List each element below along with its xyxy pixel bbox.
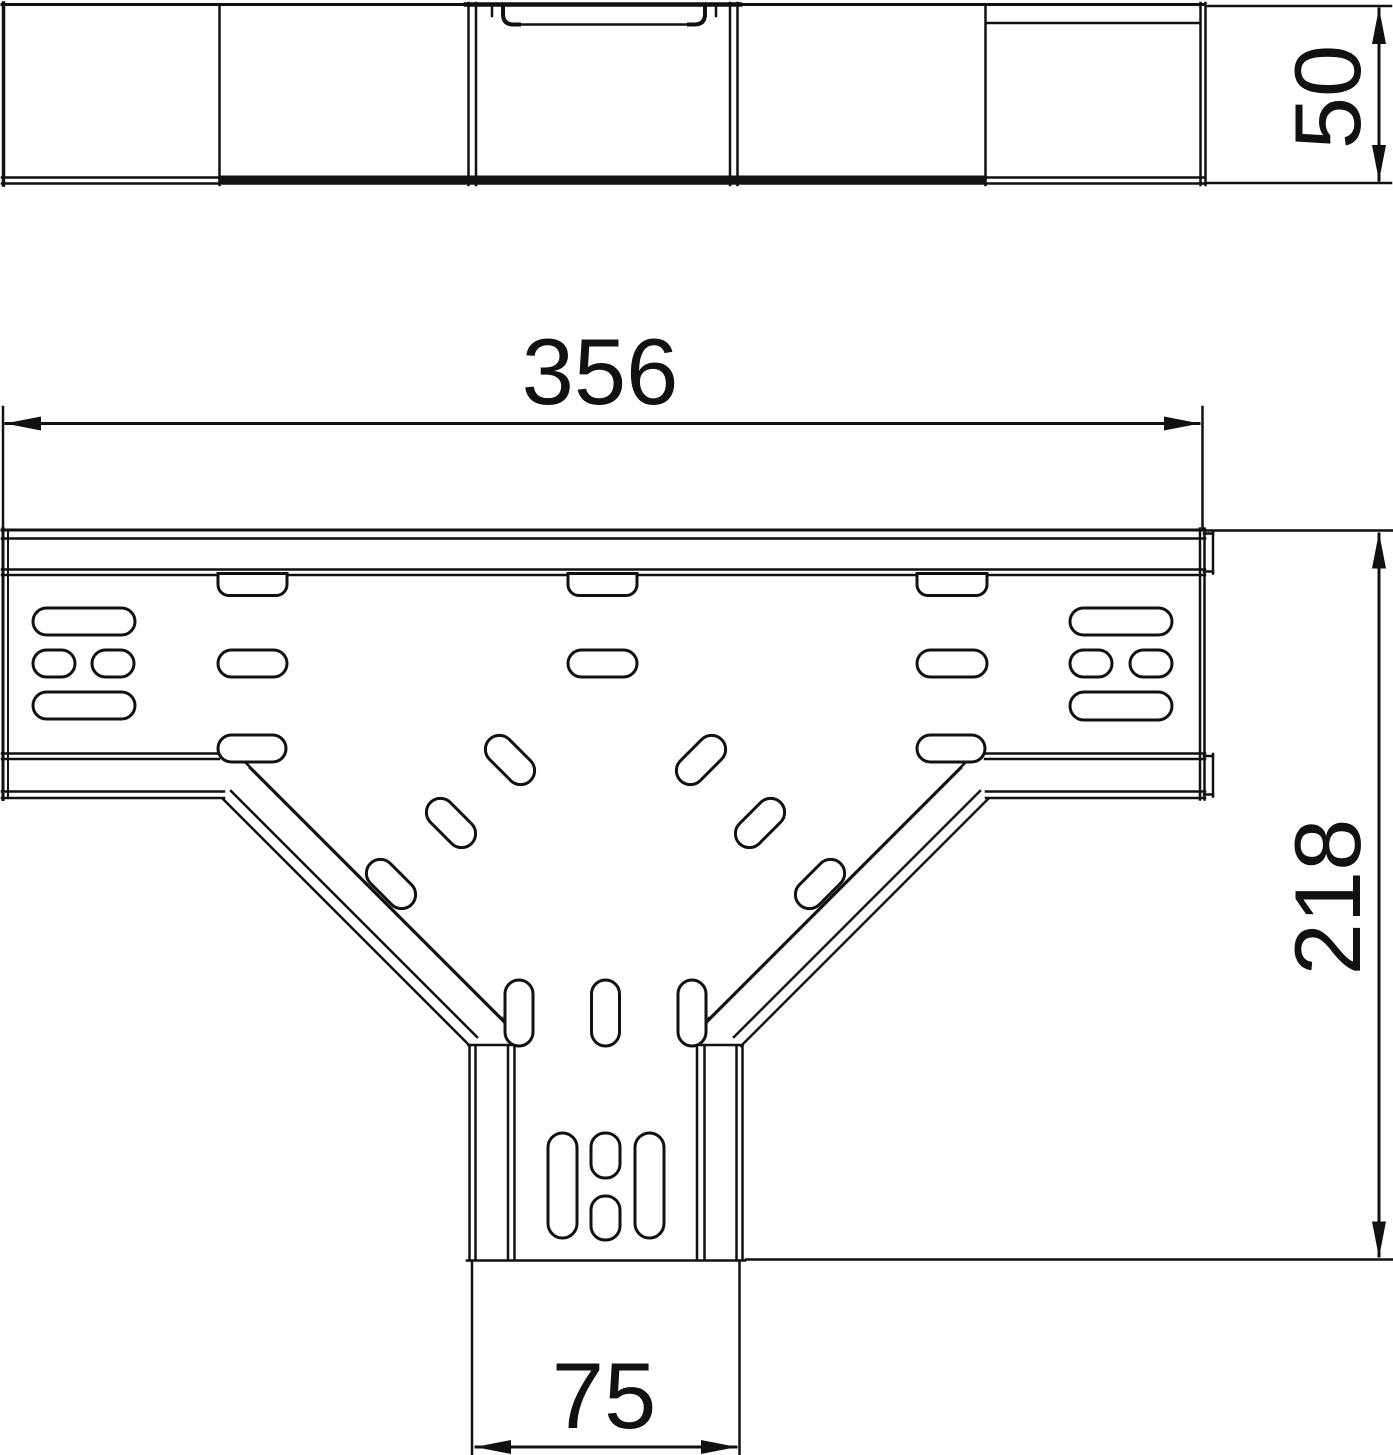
slot (218, 735, 286, 762)
slot (505, 980, 533, 1046)
slot (730, 793, 791, 854)
slot (218, 574, 287, 596)
dimension-branch-depth: 218 (746, 531, 1392, 1260)
slot (361, 854, 422, 915)
slot (548, 1133, 577, 1238)
arrowhead-down (1372, 1222, 1386, 1258)
coupler-hook-right (689, 6, 705, 25)
slot (678, 980, 706, 1046)
dim-label-75: 75 (552, 1343, 657, 1448)
slot (917, 735, 985, 762)
dim-label-356: 356 (522, 319, 679, 424)
plan-perforations (33, 574, 1172, 1241)
slot (592, 980, 620, 1046)
arrowhead-right (1164, 417, 1200, 431)
slot (33, 692, 135, 719)
slot (33, 650, 75, 677)
slot (33, 608, 135, 635)
drawing-canvas: 50 (0, 0, 1393, 1455)
branch-diagonal-right (708, 760, 988, 1046)
arrowhead-left (5, 417, 41, 431)
slot (917, 650, 987, 677)
arrowhead-down (1372, 145, 1386, 181)
dimension-branch-width: 75 (472, 1261, 740, 1454)
side-view (2, 3, 1206, 185)
arrowhead-left (475, 1440, 511, 1454)
dimension-overall-width: 356 (3, 319, 1203, 529)
dim-label-50: 50 (1275, 45, 1380, 150)
slot (421, 793, 482, 854)
slot (790, 854, 851, 915)
slot (1130, 650, 1172, 677)
coupler-hook-left (503, 6, 519, 25)
dim-label-218: 218 (1275, 819, 1380, 976)
arrowhead-right (701, 1440, 737, 1454)
arrowhead-up (1372, 533, 1386, 569)
slot (1070, 692, 1172, 720)
slot (218, 650, 287, 677)
slot (917, 574, 987, 596)
technical-drawing: 50 (0, 0, 1393, 1455)
slot (671, 730, 732, 791)
slot (635, 1133, 664, 1238)
slot (1070, 608, 1172, 635)
bottom-band (219, 176, 985, 185)
slot (1070, 650, 1112, 677)
slot (568, 574, 637, 596)
slot (591, 1196, 620, 1240)
slot (92, 650, 134, 677)
dimension-side-height: 50 (1207, 6, 1391, 183)
slot (568, 650, 637, 677)
slot (591, 1133, 620, 1178)
branch-diagonal-left (223, 760, 503, 1046)
slot (480, 730, 541, 791)
arrowhead-up (1372, 8, 1386, 44)
